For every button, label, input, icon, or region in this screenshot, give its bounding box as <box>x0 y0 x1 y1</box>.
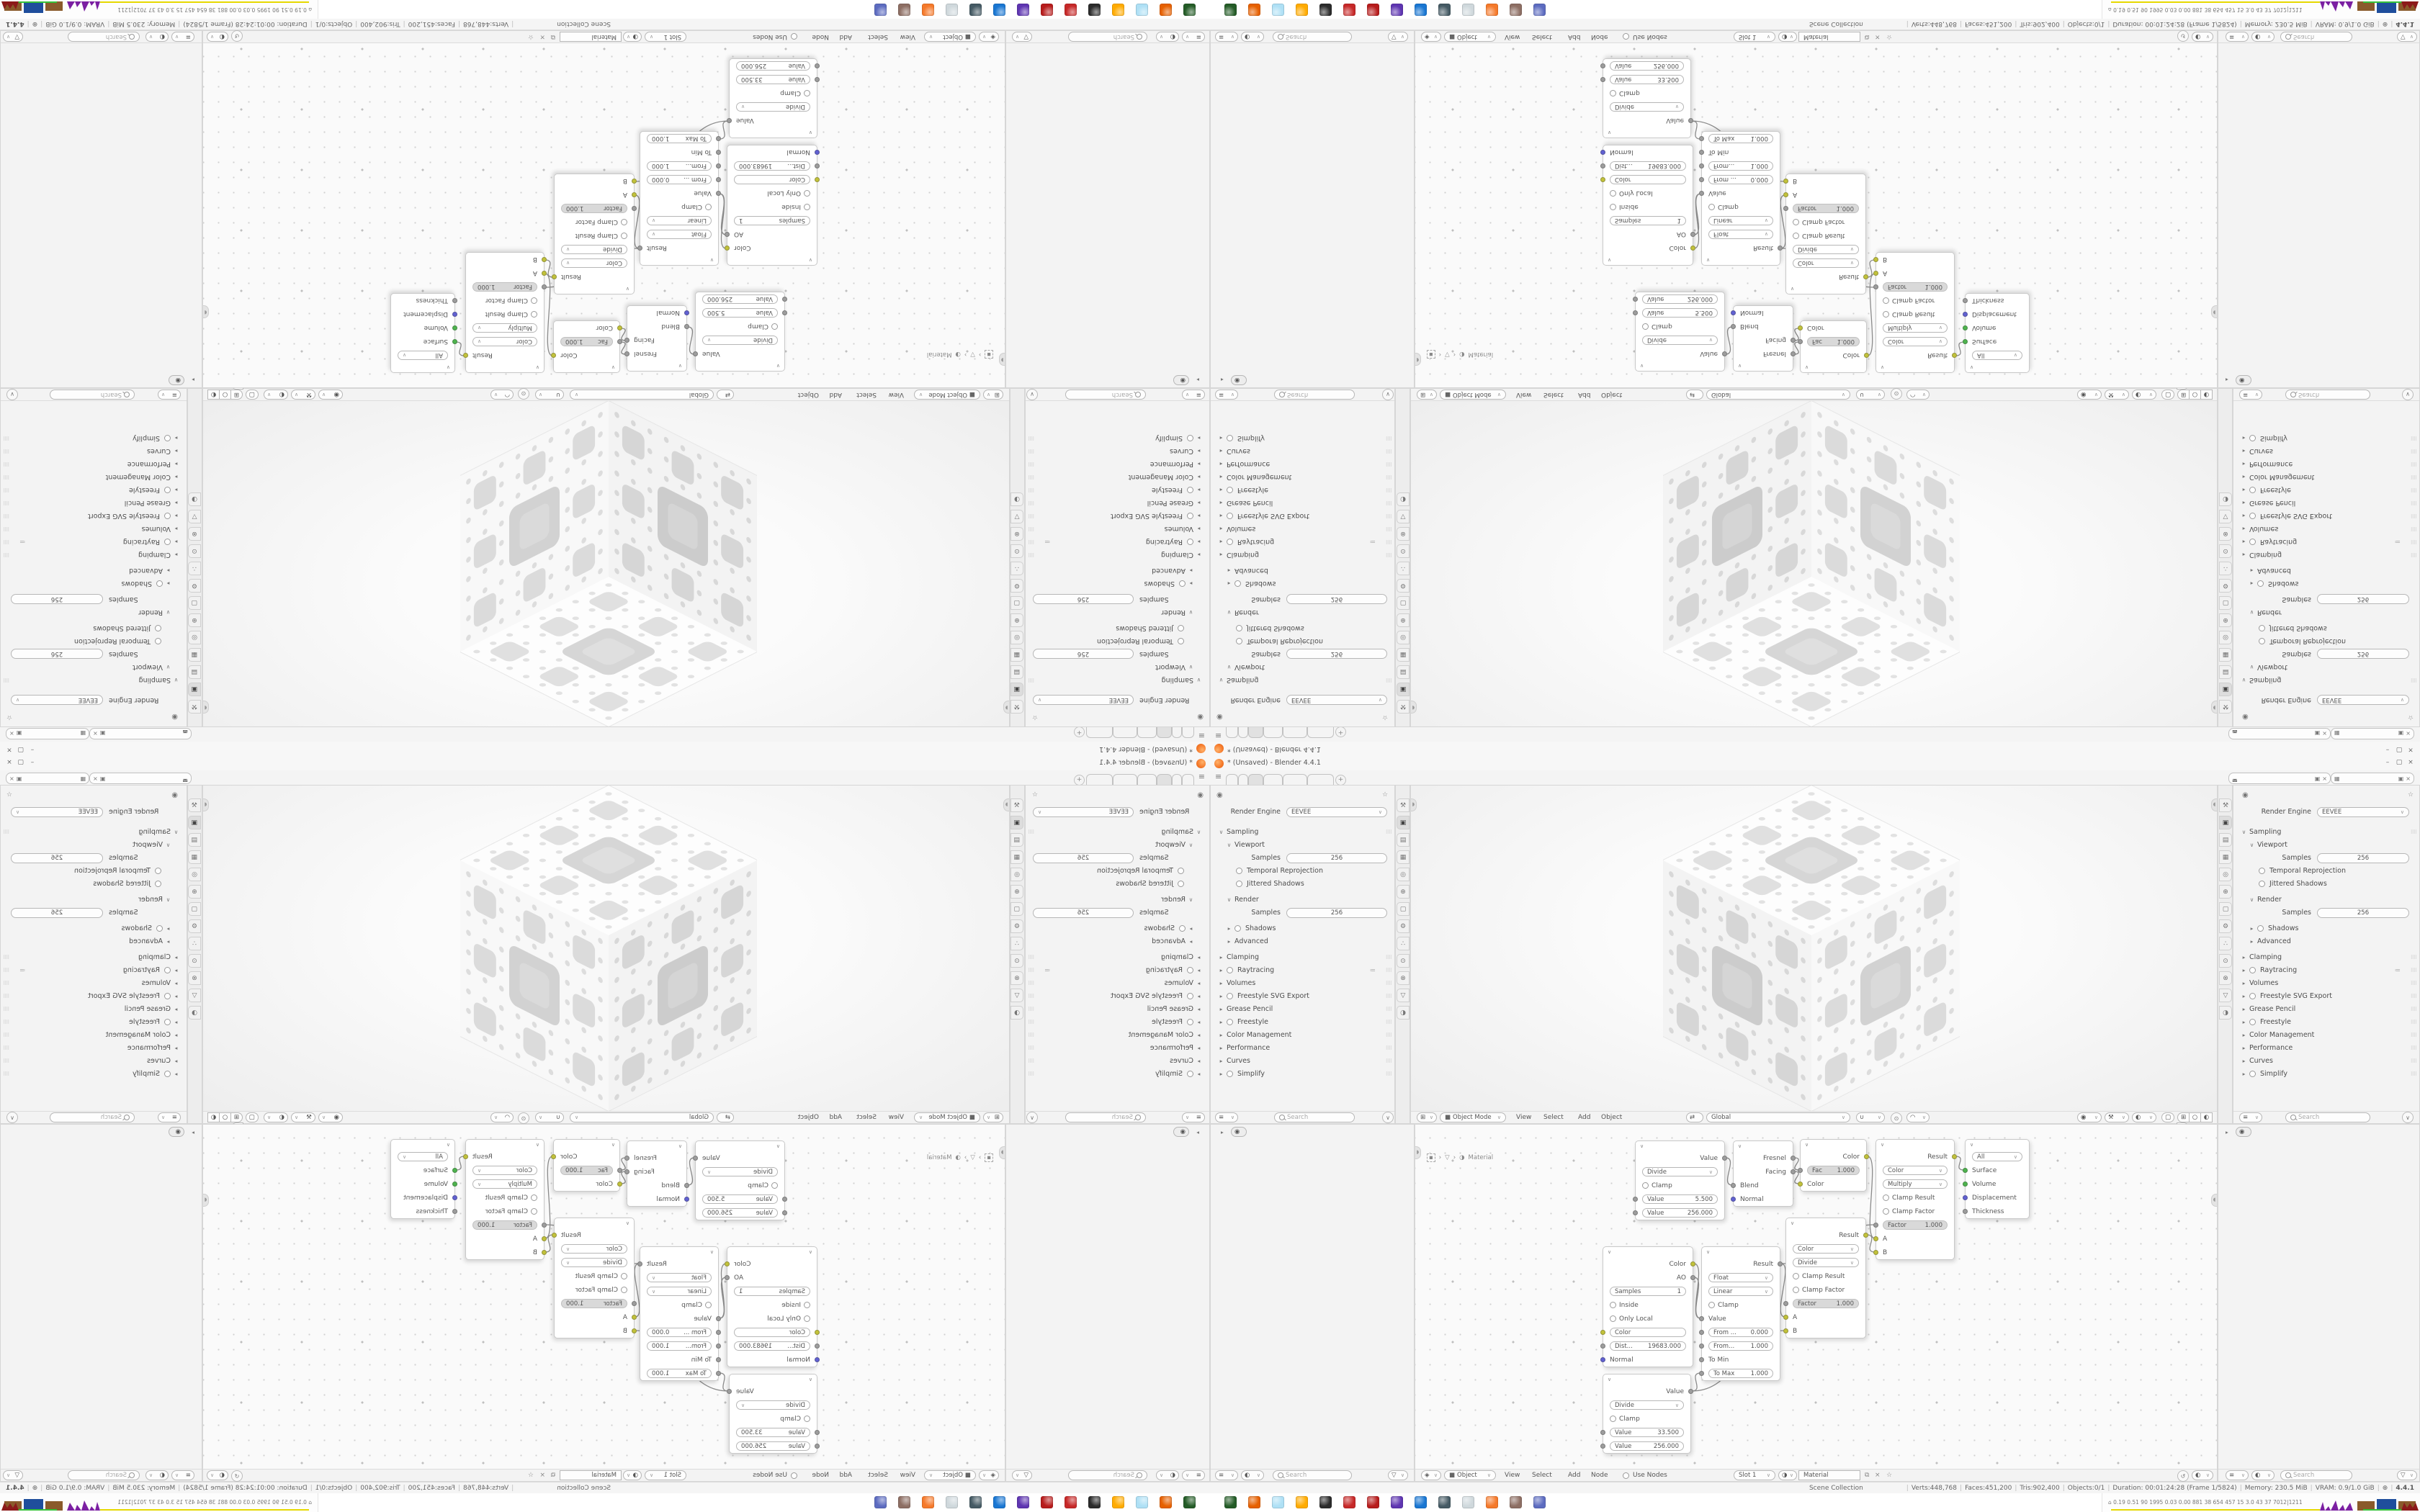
panel-checkbox[interactable] <box>1178 868 1184 874</box>
drag-handle-icon[interactable]: ⠿⠿ <box>1386 449 1391 454</box>
expand-caret[interactable]: ▸ <box>173 500 179 506</box>
output-socket[interactable] <box>1690 1275 1695 1280</box>
menu-view[interactable]: View <box>1516 1114 1531 1121</box>
expand-caret[interactable]: ▸ <box>173 1058 179 1064</box>
panel-checkbox[interactable] <box>1178 638 1184 644</box>
input-socket[interactable] <box>815 177 820 182</box>
mode-dropdown[interactable]: ■Object Mode∨ <box>914 1112 980 1122</box>
node-row[interactable]: From...1.000 <box>1702 159 1780 173</box>
expand-caret[interactable]: ∨ <box>1188 664 1194 670</box>
properties-tab-constraints-icon[interactable]: ⊗ <box>2219 971 2232 985</box>
collapsed-panel-icon-button[interactable]: ◉ <box>169 1127 184 1137</box>
node-value-field[interactable]: Fac1.000 <box>560 337 613 346</box>
use-nodes-checkbox[interactable] <box>791 33 797 40</box>
prop-row-advanced[interactable]: ▸Advanced <box>1026 564 1209 577</box>
drag-handle-icon[interactable]: ⠿⠿ <box>1028 1032 1034 1038</box>
properties-tab-tool-icon[interactable]: ⚒ <box>2219 700 2232 714</box>
drag-handle-icon[interactable]: ⠿⠿ <box>1028 678 1034 683</box>
prop-row-raytracing[interactable]: ▸Raytracing≔⠿⠿ <box>2233 964 2419 976</box>
snapping-toggle[interactable]: ↺ <box>2177 1470 2189 1482</box>
filter-button[interactable]: ▽∨ <box>2397 1470 2417 1480</box>
node-checkbox[interactable] <box>531 311 537 318</box>
sidebar-collapse-tab[interactable]: ◖ <box>2211 798 2217 811</box>
presets-icon[interactable]: ≔ <box>1044 539 1050 545</box>
node-row[interactable]: Clamp <box>730 86 817 100</box>
expand-caret[interactable]: ▸ <box>2241 435 2247 441</box>
expand-caret[interactable]: ▸ <box>2241 526 2247 532</box>
node-row[interactable]: Color∨ <box>555 1242 634 1256</box>
node-mix-multiply[interactable]: ∨ResultColor∨Multiply∨Clamp ResultClamp … <box>465 252 544 373</box>
node-value-field[interactable]: Color <box>734 1328 810 1337</box>
node-row[interactable]: To Min <box>1702 145 1780 159</box>
panel-checkbox[interactable] <box>2249 435 2256 441</box>
expand-caret[interactable]: ▸ <box>1196 539 1202 545</box>
node-row[interactable]: From ...0.000 <box>1702 1326 1780 1339</box>
properties-tab-object-icon[interactable]: ▢ <box>1397 596 1410 610</box>
workspace-tab-2[interactable] <box>1248 726 1263 738</box>
properties-tab-view-layer-icon[interactable]: ▦ <box>1397 648 1410 662</box>
mode-dropdown[interactable]: ■Object Mode∨ <box>1440 1112 1506 1122</box>
taskbar-icon-terminal[interactable] <box>1183 4 1196 16</box>
node-row[interactable]: Divide∨ <box>1603 100 1690 114</box>
taskbar-icon-docs[interactable] <box>1533 1496 1546 1508</box>
value-field[interactable]: 256 <box>2317 908 2409 918</box>
toolbar-collapse-tab[interactable]: ◗ <box>1411 798 1417 811</box>
node-collapse-caret[interactable]: ∨ <box>1738 363 1742 369</box>
display-mode-button[interactable]: ◐∨ <box>145 1470 169 1480</box>
properties-tab-particles-icon[interactable]: ∴ <box>2219 562 2232 575</box>
expand-caret[interactable]: ▸ <box>1218 1032 1224 1038</box>
prop-row-color-management[interactable]: ▸Color Management⠿⠿ <box>1026 471 1209 483</box>
drag-handle-icon[interactable]: ⠿⠿ <box>1028 474 1034 480</box>
taskbar-icon-obs[interactable] <box>1391 4 1403 16</box>
node-row[interactable]: Color <box>1801 1177 1866 1191</box>
node-dropdown[interactable]: Divide∨ <box>1793 245 1859 254</box>
node-row[interactable]: Displacement <box>391 1191 454 1205</box>
properties-tab-data-icon[interactable]: ▽ <box>1010 989 1023 1002</box>
panel-checkbox[interactable] <box>1178 881 1184 887</box>
node-row[interactable]: Divide∨ <box>696 1165 784 1179</box>
node-row[interactable]: A <box>1876 1232 1954 1246</box>
node-collapse-caret[interactable]: ∨ <box>710 1249 714 1255</box>
node-map-range[interactable]: ∨ResultFloat∨Linear∨ClampValueFrom ...0.… <box>640 1246 719 1381</box>
panel-checkbox[interactable] <box>1227 487 1233 493</box>
prop-row-simplify[interactable]: ▸Simplify⠿⠿ <box>1 432 187 444</box>
prop-row-viewport[interactable]: ∨Viewport <box>1 661 187 673</box>
node-value-field[interactable]: Value256.000 <box>1642 1208 1718 1218</box>
prop-row-advanced[interactable]: ▸Advanced <box>1 564 187 577</box>
prop-row-samples[interactable]: Samples256 <box>1 648 187 660</box>
scene-selector[interactable]: ◛▣× <box>2228 728 2331 739</box>
display-mode-button[interactable]: ◐∨ <box>1241 1470 1264 1480</box>
workspace-tab-3[interactable] <box>1137 726 1157 738</box>
prop-row-render[interactable]: ∨Render <box>1026 606 1209 618</box>
node-checkbox[interactable] <box>705 204 712 210</box>
editor-type-button[interactable]: ≡∨ <box>2226 1470 2249 1480</box>
node-collapse-caret[interactable]: ∨ <box>1640 1143 1644 1149</box>
pin-icon[interactable]: ☆ <box>1382 714 1388 721</box>
drag-handle-icon[interactable]: ⠿⠿ <box>1028 994 1034 999</box>
properties-tab-render-icon[interactable]: ▣ <box>1010 683 1023 696</box>
properties-tab-output-icon[interactable]: ▤ <box>188 665 201 679</box>
overlay-dropdown[interactable]: ◐∨ <box>2192 1470 2213 1480</box>
expand-caret[interactable]: ▸ <box>1196 967 1202 973</box>
panel-checkbox[interactable] <box>1187 435 1193 441</box>
node-row[interactable]: A <box>555 1310 634 1324</box>
render-engine-dropdown[interactable]: EEVEE∨ <box>11 696 103 706</box>
drag-handle-icon[interactable]: ⠿⠿ <box>1028 1045 1034 1051</box>
gizmo-dropdown[interactable]: ◉∨ <box>318 1112 343 1122</box>
node-value-field[interactable]: Factor1.000 <box>1793 1299 1859 1308</box>
viewport-editor-type-button[interactable]: ⊞∨ <box>983 390 1003 400</box>
proportional-edit-button[interactable]: ⊙ <box>518 1112 529 1124</box>
scene-new-icon[interactable]: ▣ <box>100 731 106 737</box>
display-mode-button[interactable]: ◐∨ <box>1241 32 1264 42</box>
material-name-field[interactable]: Material <box>1798 32 1860 42</box>
expand-caret[interactable]: ▸ <box>2241 967 2247 973</box>
drag-handle-icon[interactable]: ⠿⠿ <box>2411 1071 2416 1077</box>
taskbar-icon-docs[interactable] <box>874 1496 887 1508</box>
expand-caret[interactable]: ▸ <box>1196 1032 1202 1038</box>
taskbar-icon-firefox[interactable] <box>1248 4 1260 16</box>
properties-tab-data-icon[interactable]: ▽ <box>188 989 201 1002</box>
render-engine-dropdown[interactable]: EEVEE∨ <box>2317 807 2409 817</box>
node-row[interactable]: Clamp <box>696 1179 784 1192</box>
expand-caret[interactable]: ▸ <box>1196 1071 1202 1077</box>
overlays-dropdown[interactable]: ⚒∨ <box>2105 1112 2129 1122</box>
node-row[interactable]: A <box>466 1232 544 1246</box>
node-row[interactable]: Facing <box>1734 333 1793 347</box>
panel-checkbox[interactable] <box>164 993 171 999</box>
node-row[interactable]: Value33.500 <box>1603 73 1690 86</box>
input-socket[interactable] <box>815 163 820 168</box>
input-socket[interactable] <box>542 284 547 289</box>
maximize-button[interactable]: ▢ <box>16 744 26 755</box>
workspace-tab-3[interactable] <box>1137 774 1157 786</box>
node-row[interactable]: From...1.000 <box>1702 1339 1780 1353</box>
properties-tab-physics-icon[interactable]: ⊙ <box>2219 544 2232 558</box>
snap-magnet-button[interactable]: ∪∨ <box>1856 390 1885 400</box>
search-input[interactable]: Search <box>50 1112 135 1122</box>
node-collapse-caret[interactable]: ∨ <box>1791 286 1794 292</box>
shading-mode-1[interactable]: ○ <box>2189 390 2201 400</box>
properties-tab-physics-icon[interactable]: ⊙ <box>1397 954 1410 968</box>
prop-row-viewport[interactable]: ∨Viewport <box>2233 839 2419 851</box>
input-socket[interactable] <box>815 1357 820 1362</box>
input-socket[interactable] <box>452 1168 457 1173</box>
node-row[interactable]: B <box>555 174 634 188</box>
node-row[interactable]: Dist...19683.000 <box>727 1339 817 1353</box>
render-preview-toggle[interactable]: ▢ <box>246 1112 259 1122</box>
expand-caret[interactable]: ∨ <box>165 664 171 670</box>
input-socket[interactable] <box>1699 1330 1704 1335</box>
shading-mode-1[interactable]: ○ <box>219 1112 231 1122</box>
menu-node[interactable]: Node <box>812 1472 830 1479</box>
output-socket[interactable] <box>693 351 698 356</box>
taskbar-icon-red-gear-2[interactable] <box>1041 1496 1053 1508</box>
xray-dropdown[interactable]: ◐∨ <box>264 390 288 400</box>
node-row[interactable]: Normal <box>727 1353 817 1367</box>
input-socket[interactable] <box>782 310 787 315</box>
node-row[interactable]: Normal <box>1603 145 1693 159</box>
expand-caret[interactable]: ▸ <box>1196 980 1202 986</box>
properties-tab-data-icon[interactable]: ▽ <box>1010 510 1023 523</box>
node-row[interactable]: Linear∨ <box>640 214 718 228</box>
prop-row-shadows[interactable]: ▸Shadows <box>1211 922 1394 935</box>
value-field[interactable]: 256 <box>11 649 103 660</box>
node-value-field[interactable]: Factor1.000 <box>472 282 537 292</box>
expand-caret[interactable]: ▸ <box>1196 526 1202 532</box>
material-unlink-icon[interactable]: × <box>539 1472 545 1479</box>
node-row[interactable]: Factor1.000 <box>466 280 544 294</box>
prop-row-shadows[interactable]: ▸Shadows <box>2233 577 2419 590</box>
panel-checkbox[interactable] <box>164 1019 171 1025</box>
node-row[interactable]: B <box>466 1246 544 1259</box>
presets-icon[interactable]: ≔ <box>1044 967 1050 973</box>
node-row[interactable]: Value33.500 <box>730 73 817 86</box>
input-socket[interactable] <box>815 1330 820 1335</box>
prop-row-performance[interactable]: ▸Performance⠿⠿ <box>1026 1042 1209 1054</box>
node-row[interactable]: Value5.500 <box>1636 306 1724 320</box>
drag-handle-icon[interactable]: ⠿⠿ <box>4 1071 9 1077</box>
node-row[interactable]: Value <box>1603 1385 1690 1398</box>
prop-row-raytracing[interactable]: ▸Raytracing≔⠿⠿ <box>1 964 187 976</box>
menu-view[interactable]: View <box>1516 391 1531 398</box>
drag-handle-icon[interactable]: ⠿⠿ <box>1028 436 1034 441</box>
expand-caret[interactable]: ▸ <box>1218 1019 1224 1025</box>
shader-node-editor[interactable]: ◗ ◖ ▪ › ▽ › ◑ Material ∨ValueDivide∨Clam… <box>1415 1124 2218 1482</box>
output-socket[interactable] <box>1791 351 1796 356</box>
node-row[interactable]: Color <box>554 348 619 362</box>
node-value-field[interactable]: Color <box>1610 1328 1686 1337</box>
input-socket[interactable] <box>1731 310 1736 315</box>
expand-caret[interactable]: ▸ <box>2241 552 2247 558</box>
close-button[interactable]: × <box>2406 744 2416 755</box>
properties-tab-constraints-icon[interactable]: ⊗ <box>2219 527 2232 541</box>
node-collapse-caret[interactable]: ∨ <box>611 364 615 370</box>
node-row[interactable]: From ...0.000 <box>1702 173 1780 186</box>
node-mix-divide[interactable]: ∨ResultColor∨Divide∨Clamp ResultClamp Fa… <box>1785 174 1866 294</box>
menger-cube-object[interactable] <box>460 786 757 1111</box>
input-socket[interactable] <box>716 1344 721 1349</box>
node-row[interactable]: Color∨ <box>1876 1164 1954 1177</box>
collapsed-panel-icon-button[interactable]: ◉ <box>1231 375 1247 385</box>
minimize-button[interactable]: – <box>27 757 37 768</box>
properties-tab-material-icon[interactable]: ◑ <box>1397 492 1410 506</box>
node-value-field[interactable]: Color <box>1610 175 1686 184</box>
input-socket[interactable] <box>716 191 721 196</box>
workspace-tab-5[interactable] <box>1307 726 1334 738</box>
expand-caret[interactable]: ▸ <box>173 435 179 441</box>
expand-caret[interactable]: ▸ <box>1196 1019 1202 1025</box>
properties-tab-render-icon[interactable]: ▣ <box>2219 816 2232 829</box>
menu-hamburger-icon[interactable]: ≡ <box>1215 731 1222 740</box>
presets-icon[interactable]: ≔ <box>19 539 25 545</box>
node-dropdown[interactable]: Multiply∨ <box>472 323 537 333</box>
input-socket[interactable] <box>1798 339 1803 344</box>
drag-handle-icon[interactable]: ⠿⠿ <box>1386 513 1391 519</box>
panel-checkbox[interactable] <box>1227 513 1233 519</box>
node-row[interactable]: Facing <box>627 333 686 347</box>
node-collapse-caret[interactable]: ∨ <box>1970 364 1973 370</box>
render-engine-dropdown[interactable]: EEVEE∨ <box>2317 696 2409 706</box>
input-socket[interactable] <box>716 1357 721 1362</box>
expand-caret[interactable]: ▸ <box>165 567 171 574</box>
node-row[interactable]: Linear∨ <box>640 1284 718 1298</box>
orientation-icon-button[interactable]: ⇄ <box>717 390 734 400</box>
collapse-menus-button[interactable]: ∨ <box>1026 389 1038 400</box>
expand-caret[interactable]: ▸ <box>173 487 179 493</box>
node-collapse-caret[interactable]: ∨ <box>447 1142 450 1148</box>
input-socket[interactable] <box>1873 1236 1878 1241</box>
drag-handle-icon[interactable]: ⠿⠿ <box>1028 1007 1034 1012</box>
minimize-button[interactable]: – <box>2383 757 2393 768</box>
value-field[interactable]: 256 <box>1033 853 1134 863</box>
taskbar-icon-firefox-dev[interactable] <box>1112 4 1124 16</box>
node-value-field[interactable]: From ...0.000 <box>647 175 712 184</box>
properties-tab-physics-icon[interactable]: ⊙ <box>1010 544 1023 558</box>
scene-unlink-icon[interactable]: × <box>2322 731 2327 737</box>
node-checkbox[interactable] <box>1793 1273 1799 1279</box>
output-socket[interactable] <box>1952 1154 1957 1159</box>
expand-caret[interactable]: ▸ <box>1188 925 1194 932</box>
shading-mode-1[interactable]: ○ <box>219 390 231 400</box>
taskbar-icon-screen-app[interactable] <box>993 4 1005 16</box>
properties-tab-constraints-icon[interactable]: ⊗ <box>1397 527 1410 541</box>
expand-caret[interactable]: ▸ <box>173 967 179 973</box>
properties-tab-output-icon[interactable]: ▤ <box>2219 833 2232 847</box>
taskbar-icon-gimp[interactable] <box>898 4 910 16</box>
collapsed-panel-caret[interactable]: ▸ <box>1196 1129 1199 1135</box>
prop-row-freestyle-svg-export[interactable]: ▸Freestyle SVG Export⠿⠿ <box>2233 510 2419 522</box>
input-socket[interactable] <box>1963 298 1968 303</box>
filter-button[interactable]: ▽∨ <box>1388 1470 1408 1480</box>
workspace-tab-4[interactable] <box>1283 726 1307 738</box>
node-row[interactable]: Result <box>640 1257 718 1271</box>
collapsed-panel-caret[interactable]: ▸ <box>1221 377 1224 383</box>
prop-row-viewport[interactable]: ∨Viewport <box>1211 839 1394 851</box>
node-collapse-caret[interactable]: ∨ <box>678 363 682 369</box>
node-row[interactable]: Factor1.000 <box>1786 1297 1865 1310</box>
properties-tab-output-icon[interactable]: ▤ <box>1397 833 1410 847</box>
node-row[interactable]: Clamp Factor <box>1786 215 1865 229</box>
prop-row-sampling[interactable]: ∨Sampling⠿⠿ <box>2233 826 2419 838</box>
node-row[interactable]: Displacement <box>1966 307 2029 321</box>
node-math-divide-1[interactable]: ∨ValueDivide∨ClampValue5.500Value256.000 <box>1635 1140 1725 1220</box>
prop-row-grease-pencil[interactable]: ▸Grease Pencil⠿⠿ <box>2233 497 2419 509</box>
node-row[interactable]: Blend <box>1734 1179 1793 1192</box>
input-socket[interactable] <box>1633 310 1638 315</box>
expand-caret[interactable]: ▸ <box>2241 487 2247 493</box>
transform-orientation-dropdown[interactable]: Global∨ <box>570 1112 714 1122</box>
search-input[interactable]: Search <box>2280 32 2352 42</box>
output-socket[interactable] <box>624 351 629 356</box>
presets-icon[interactable]: ≔ <box>1370 967 1376 973</box>
node-row[interactable]: Result <box>1876 1150 1954 1164</box>
collapse-menus-button[interactable]: ∨ <box>1382 389 1394 400</box>
node-row[interactable]: Multiply∨ <box>1876 321 1954 335</box>
node-row[interactable]: Result <box>1702 241 1780 255</box>
taskbar-icon-red-gear-1[interactable] <box>1343 1496 1355 1508</box>
gizmo-dropdown[interactable]: ◉∨ <box>2077 1112 2102 1122</box>
node-row[interactable]: Color∨ <box>466 335 544 348</box>
input-socket[interactable] <box>815 1444 820 1449</box>
scene-unlink-icon[interactable]: × <box>93 731 98 737</box>
material-new-icon[interactable]: ⧉ <box>551 33 555 40</box>
scene-unlink-icon[interactable]: × <box>93 775 98 782</box>
prop-row-advanced[interactable]: ▸Advanced <box>1 935 187 948</box>
node-layer-weight[interactable]: ∨FresnelFacingBlendNormal <box>627 305 687 372</box>
node-value-field[interactable]: Factor1.000 <box>1793 204 1859 213</box>
menu-select[interactable]: Select <box>1532 1472 1552 1479</box>
panel-checkbox[interactable] <box>1187 993 1193 999</box>
expand-caret[interactable]: ∨ <box>2249 664 2255 670</box>
taskbar-icon-gimp[interactable] <box>1510 1496 1522 1508</box>
node-value-field[interactable]: Value33.500 <box>1610 75 1684 84</box>
expand-caret[interactable]: ▸ <box>1196 954 1202 960</box>
drag-handle-icon[interactable]: ⠿⠿ <box>4 436 9 441</box>
node-row[interactable]: Dist...19683.000 <box>727 159 817 173</box>
prop-row-grease-pencil[interactable]: ▸Grease Pencil⠿⠿ <box>1211 1003 1394 1015</box>
collapsed-panel-icon-button[interactable]: ◉ <box>2236 1127 2251 1137</box>
expand-caret[interactable]: ▸ <box>2241 1006 2247 1012</box>
output-socket[interactable] <box>1688 118 1693 123</box>
node-row[interactable]: B <box>1876 253 1954 266</box>
input-socket[interactable] <box>1600 77 1605 82</box>
prop-row-advanced[interactable]: ▸Advanced <box>2233 564 2419 577</box>
expand-caret[interactable]: ▸ <box>1218 435 1224 441</box>
menu-select[interactable]: Select <box>868 33 888 40</box>
node-row[interactable]: Result <box>1702 1257 1780 1271</box>
expand-caret[interactable]: ▸ <box>173 448 179 454</box>
node-dropdown[interactable]: Linear∨ <box>647 1287 712 1296</box>
drag-handle-icon[interactable]: ⠿⠿ <box>1386 1020 1391 1025</box>
expand-caret[interactable]: ∨ <box>1196 829 1202 835</box>
node-row[interactable]: Value256.000 <box>730 1439 817 1453</box>
node-collapse-caret[interactable]: ∨ <box>1640 363 1644 369</box>
node-value-field[interactable]: From ...0.000 <box>1708 175 1773 184</box>
orientation-icon-button[interactable]: ⇄ <box>717 1112 734 1122</box>
properties-tab-view-layer-icon[interactable]: ▦ <box>1010 648 1023 662</box>
snapping-toggle[interactable]: ↺ <box>2177 30 2189 42</box>
prop-row-jittered-shadows[interactable]: Jittered Shadows <box>1 622 187 634</box>
prop-row-grease-pencil[interactable]: ▸Grease Pencil⠿⠿ <box>1 497 187 509</box>
orientation-icon-button[interactable]: ⇄ <box>1686 390 1703 400</box>
properties-tab-world-icon[interactable]: ⊕ <box>2219 613 2232 627</box>
input-socket[interactable] <box>815 1430 820 1435</box>
drag-handle-icon[interactable]: ⠿⠿ <box>1386 539 1391 545</box>
panel-checkbox[interactable] <box>2249 539 2256 545</box>
node-row[interactable]: Clamp <box>1702 200 1780 214</box>
taskbar-icon-blender[interactable] <box>1486 1496 1498 1508</box>
node-row[interactable]: Value <box>730 114 817 127</box>
node-row[interactable]: Multiply∨ <box>466 321 544 335</box>
node-row[interactable]: Color <box>727 241 817 255</box>
expand-caret[interactable]: ∨ <box>1226 896 1232 903</box>
node-row[interactable]: Only Local <box>1603 186 1693 200</box>
add-workspace-button[interactable]: + <box>1074 726 1085 737</box>
node-row[interactable]: Clamp <box>1603 86 1690 100</box>
properties-tab-material-icon[interactable]: ◑ <box>1010 1006 1023 1020</box>
node-row[interactable]: Fresnel <box>627 347 686 361</box>
node-value-field[interactable]: Factor1.000 <box>561 1299 627 1308</box>
shading-mode-2[interactable]: ◐ <box>2200 390 2213 400</box>
input-socket[interactable] <box>1731 1183 1736 1188</box>
prop-row-curves[interactable]: ▸Curves⠿⠿ <box>1026 1055 1209 1067</box>
input-socket[interactable] <box>542 257 547 262</box>
display-mode-button[interactable]: ◐∨ <box>145 32 169 42</box>
taskbar-icon-obs[interactable] <box>1017 1496 1029 1508</box>
